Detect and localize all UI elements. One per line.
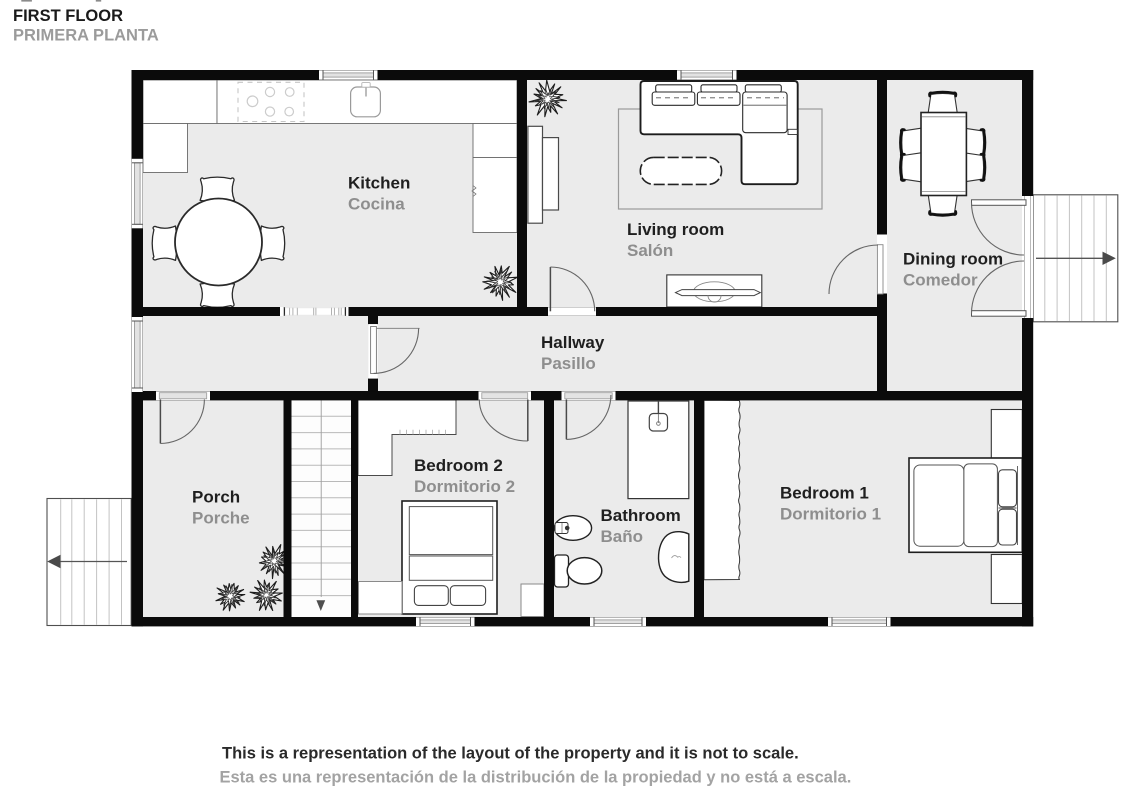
svg-text:Salón: Salón xyxy=(627,241,673,260)
svg-text:Bedroom 2: Bedroom 2 xyxy=(414,456,503,475)
svg-text:Porch: Porch xyxy=(192,488,240,507)
svg-text:Hallway: Hallway xyxy=(541,333,605,352)
svg-text:Dormitorio 2: Dormitorio 2 xyxy=(414,477,515,496)
svg-text:Esta es una representación de: Esta es una representación de la distrib… xyxy=(220,769,852,787)
svg-text:Dining room: Dining room xyxy=(903,250,1003,269)
svg-text:FIRST FLOOR: FIRST FLOOR xyxy=(13,7,123,25)
svg-text:Cocina: Cocina xyxy=(348,195,405,214)
svg-text:Kitchen: Kitchen xyxy=(348,174,410,193)
svg-text:Baño: Baño xyxy=(601,527,644,546)
svg-text:Living room: Living room xyxy=(627,220,724,239)
svg-text:Bathroom: Bathroom xyxy=(601,506,681,525)
svg-text:Dormitorio 1: Dormitorio 1 xyxy=(780,505,881,524)
svg-text:PRIMERA PLANTA: PRIMERA PLANTA xyxy=(13,26,159,44)
svg-text:Pasillo: Pasillo xyxy=(541,354,596,373)
svg-text:Bedroom 1: Bedroom 1 xyxy=(780,484,869,503)
svg-text:Comedor: Comedor xyxy=(903,271,978,290)
svg-text:Porche: Porche xyxy=(192,509,250,528)
svg-text:This is a representation of th: This is a representation of the layout o… xyxy=(222,745,799,763)
